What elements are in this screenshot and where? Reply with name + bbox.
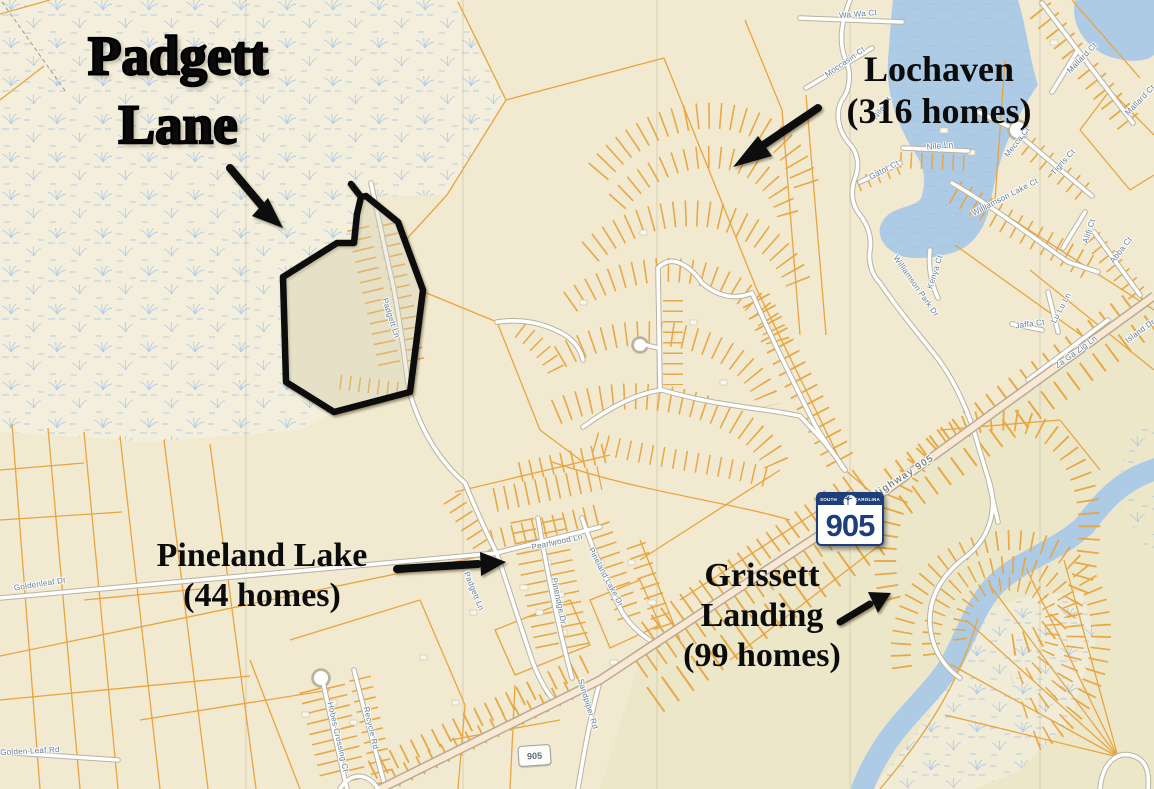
grissett-line2: Landing bbox=[658, 596, 866, 636]
grissett-line1: Grissett bbox=[658, 556, 866, 596]
pineland-lake-callout: Pineland Lake (44 homes) bbox=[138, 536, 386, 616]
lochaven-callout: Lochaven (316 homes) bbox=[828, 48, 1050, 133]
shield-route-number: 905 bbox=[818, 505, 882, 544]
shield-state-right: CAROLINA bbox=[854, 497, 880, 502]
map-figure: Wa Wa CtMoccasin CtMallard CtMallard CtN… bbox=[0, 0, 1154, 789]
mini-905-road-marker: 905 bbox=[517, 744, 551, 767]
padgett-title-line2: Lane bbox=[18, 91, 338, 160]
lochaven-name: Lochaven bbox=[828, 48, 1050, 90]
pineland-homes: (44 homes) bbox=[138, 576, 386, 616]
shield-state-left: SOUTH bbox=[820, 497, 837, 502]
sc-905-highway-shield: SOUTH CAROLINA 905 bbox=[816, 492, 884, 546]
palmetto-emblem-icon bbox=[844, 495, 857, 508]
shield-state-band: SOUTH CAROLINA bbox=[818, 494, 882, 505]
padgett-title-line1: Padgett bbox=[18, 22, 338, 91]
pineland-name: Pineland Lake bbox=[138, 536, 386, 576]
grissett-homes: (99 homes) bbox=[658, 636, 866, 676]
lochaven-homes: (316 homes) bbox=[828, 90, 1050, 132]
grissett-landing-callout: Grissett Landing (99 homes) bbox=[658, 556, 866, 676]
padgett-lane-title: Padgett Lane bbox=[18, 22, 338, 160]
